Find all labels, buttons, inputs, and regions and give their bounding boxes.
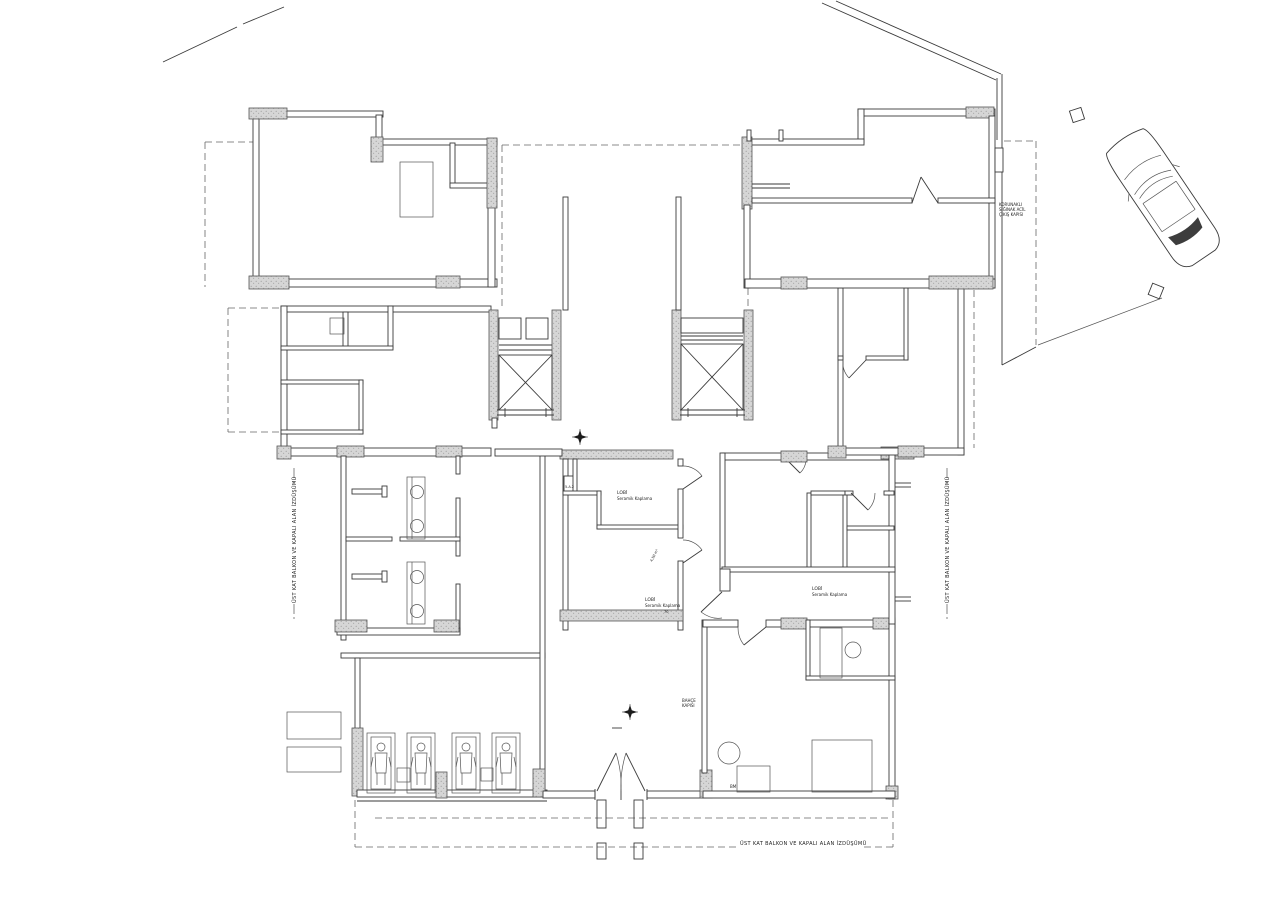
chair [845, 642, 861, 658]
column [335, 620, 367, 632]
column [781, 277, 807, 289]
side-table [397, 768, 410, 782]
shaft-riser-wall [563, 197, 568, 310]
table-furniture [400, 162, 433, 217]
shaft-riser-wall [676, 197, 681, 310]
column [249, 108, 287, 119]
room-label-lobby-lower: LOBİ [645, 596, 655, 603]
column [436, 276, 460, 288]
hall-top-wall [560, 450, 673, 459]
column [828, 446, 846, 458]
column [781, 618, 807, 629]
shaft-wall [672, 310, 681, 420]
bm-label: BM [730, 784, 737, 789]
car-icon [1097, 121, 1229, 275]
desk [820, 628, 842, 678]
column [337, 446, 364, 457]
door-swing [738, 627, 766, 645]
door-swing [701, 592, 722, 618]
column [487, 138, 497, 208]
furniture [737, 766, 770, 792]
shaft-wall [552, 310, 561, 420]
basin-counter [407, 562, 425, 624]
column [434, 620, 459, 632]
annotation-texts: KORUNAKLI SIĞINAK ACİL ÇIKIŞ KAPISI LOBİ… [291, 202, 1026, 847]
round-table [718, 742, 740, 764]
survey-marker-square [1069, 107, 1084, 122]
area-note-label: 4,50 m² [649, 548, 659, 563]
column [742, 137, 752, 209]
column [436, 446, 462, 457]
elevator-core-left [489, 310, 561, 428]
room-finish-lobby-lower: Seramik Kaplama [645, 603, 681, 608]
level-marker [572, 429, 588, 445]
dim-note-label: 70 [664, 610, 668, 614]
column [277, 446, 291, 459]
fixture [330, 318, 344, 334]
mid-left-rooms [277, 306, 491, 459]
column [436, 772, 447, 798]
garden-door-label: KAPISI [682, 703, 695, 708]
right-corridor-block [701, 447, 914, 624]
room-finish-lobby-right: Seramik Kaplama [812, 592, 848, 597]
column [929, 276, 993, 289]
sun-lounger [367, 733, 395, 793]
top-left-wing [249, 108, 497, 289]
shaft-wall [489, 310, 498, 420]
projection-label-right: ÜST KAT BALKON VE KAPALI ALAN İZDÜŞÜMÜ [944, 476, 951, 603]
shaft-tag-label: 5.A.2 [565, 485, 574, 489]
projection-label-left: ÜST KAT BALKON VE KAPALI ALAN İZDÜŞÜMÜ [291, 476, 298, 603]
column [781, 451, 807, 462]
sun-lounger [492, 733, 520, 793]
elevator-core-right [672, 310, 753, 420]
floor-plan-sheet: KORUNAKLI SIĞINAK ACİL ÇIKIŞ KAPISI LOBİ… [0, 0, 1280, 905]
side-table [481, 768, 493, 781]
column [352, 728, 363, 796]
sun-lounger [407, 733, 435, 793]
bed [812, 740, 872, 792]
room-finish-lobby-upper: Seramik Kaplama [617, 496, 653, 501]
column [898, 446, 924, 457]
door-swing [851, 493, 875, 510]
entrance-steps [597, 800, 643, 859]
sun-lounger [452, 733, 480, 793]
level-marker [612, 704, 638, 728]
projection-label-bottom: ÜST KAT BALKON VE KAPALI ALAN İZDÜŞÜMÜ [740, 840, 867, 847]
door-swing [683, 540, 702, 563]
room-label-lobby-upper: LOBİ [617, 489, 627, 496]
basin-counter [407, 477, 425, 539]
floor-plan-canvas: KORUNAKLI SIĞINAK ACİL ÇIKIŞ KAPISI LOBİ… [0, 0, 1280, 905]
shelter-exit-label: ÇIKIŞ KAPISI [999, 212, 1023, 217]
column [249, 276, 289, 289]
shaft-wall [744, 310, 753, 420]
planter [287, 747, 341, 772]
exit-door-leaf [995, 148, 1003, 172]
door-swing [843, 360, 866, 378]
car-rear-window [1168, 217, 1205, 248]
main-entrance [543, 620, 712, 800]
caretaker-rooms [703, 618, 898, 799]
survey-marker-square [1148, 283, 1164, 299]
column [371, 137, 383, 162]
planter [287, 712, 341, 739]
top-right-wing [742, 107, 1003, 289]
double-door [597, 753, 645, 791]
right-mid-rooms [828, 288, 964, 458]
basin-rooms [335, 456, 460, 640]
room-label-lobby-right: LOBİ [812, 585, 822, 592]
door-swing [912, 177, 938, 203]
door-swing [683, 466, 702, 489]
